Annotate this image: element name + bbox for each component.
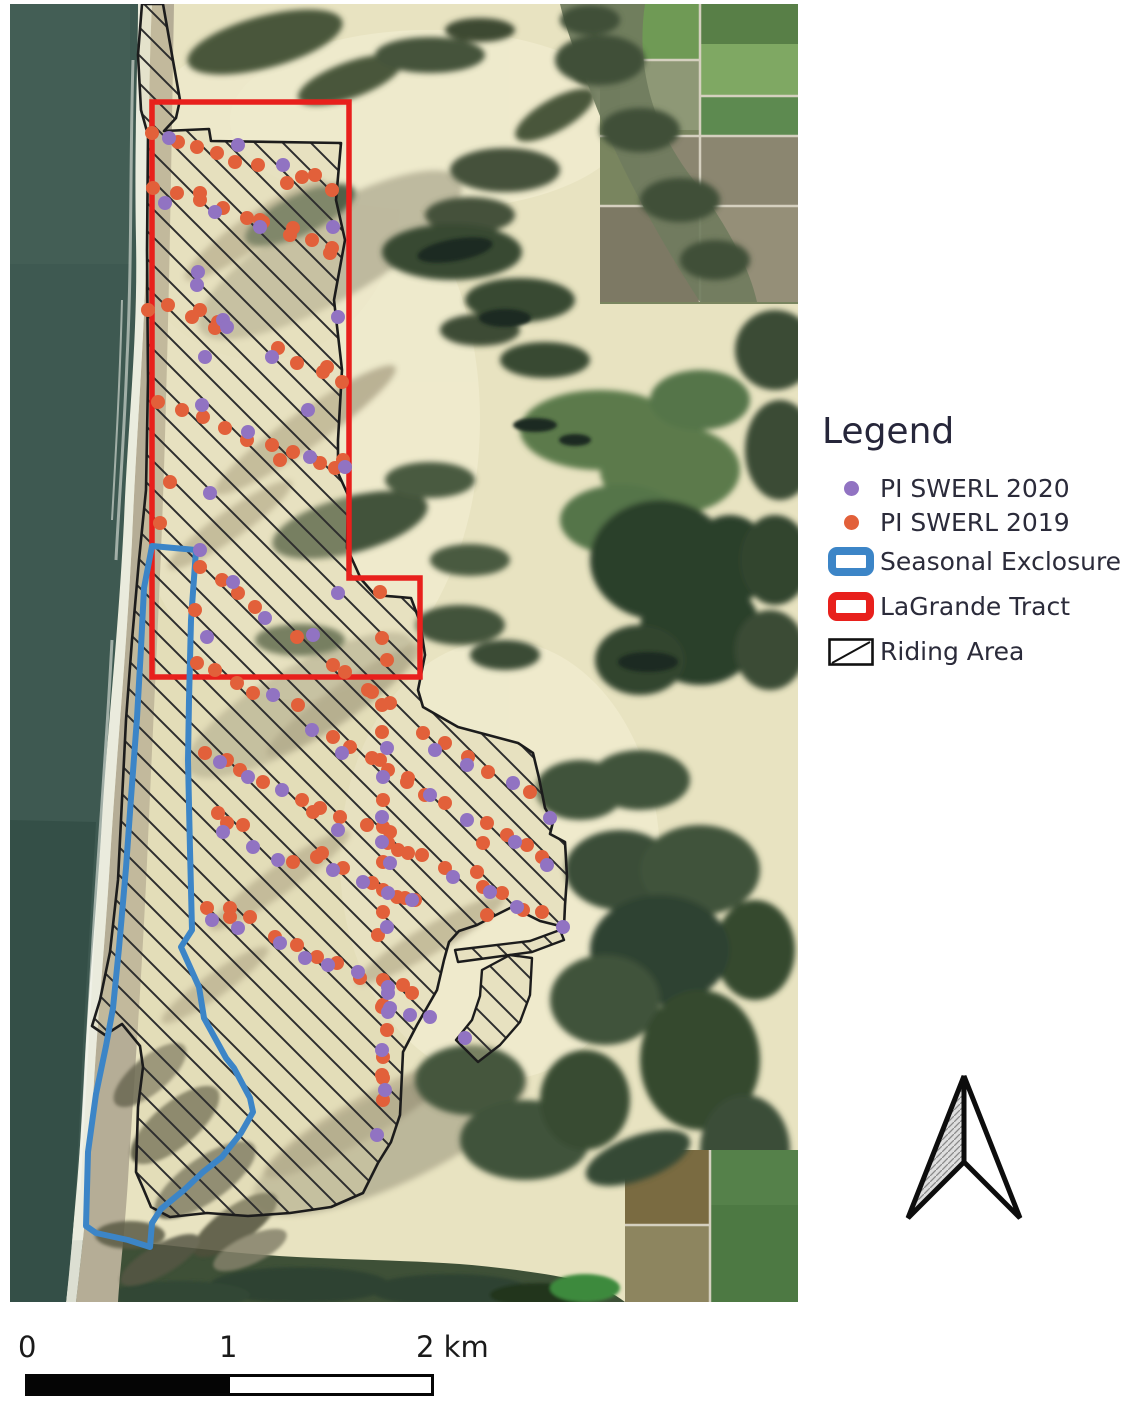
pi-swerl-2019-dot-swatch xyxy=(844,515,859,530)
figure-canvas: Legend PI SWERL 2020 PI SWERL 2019 Seaso… xyxy=(0,0,1140,1407)
scale-bar-track xyxy=(25,1374,434,1396)
map xyxy=(10,4,798,1302)
satellite-map xyxy=(10,4,798,1302)
north-arrow-icon xyxy=(893,1062,1033,1232)
legend-item-lagrande-tract: LaGrande Tract xyxy=(822,585,1140,629)
scale-tick-0: 0 xyxy=(18,1330,36,1364)
legend-label: PI SWERL 2020 xyxy=(880,474,1070,503)
legend-item-riding-area: Riding Area xyxy=(822,630,1140,674)
legend-label: Seasonal Exclosure xyxy=(880,547,1121,576)
seasonal-exclosure-swatch xyxy=(828,547,874,576)
legend-item-seasonal-exclosure: Seasonal Exclosure xyxy=(822,540,1140,584)
scale-bar-filled-segment xyxy=(28,1377,230,1393)
scale-tick-1: 1 xyxy=(219,1330,237,1364)
legend-item-pi-swerl-2019: PI SWERL 2019 xyxy=(822,506,1140,539)
legend-item-pi-swerl-2020: PI SWERL 2020 xyxy=(822,472,1140,505)
legend-label: PI SWERL 2019 xyxy=(880,508,1070,537)
legend-label: LaGrande Tract xyxy=(880,592,1070,621)
riding-area-hatch-swatch xyxy=(828,638,874,666)
scale-tick-2km: 2 km xyxy=(416,1330,489,1364)
lagrande-tract-swatch xyxy=(828,592,874,621)
legend: Legend PI SWERL 2020 PI SWERL 2019 Seaso… xyxy=(822,412,1140,675)
legend-label: Riding Area xyxy=(880,637,1024,666)
pi-swerl-2020-dot-swatch xyxy=(844,481,859,496)
legend-title: Legend xyxy=(822,412,1140,452)
